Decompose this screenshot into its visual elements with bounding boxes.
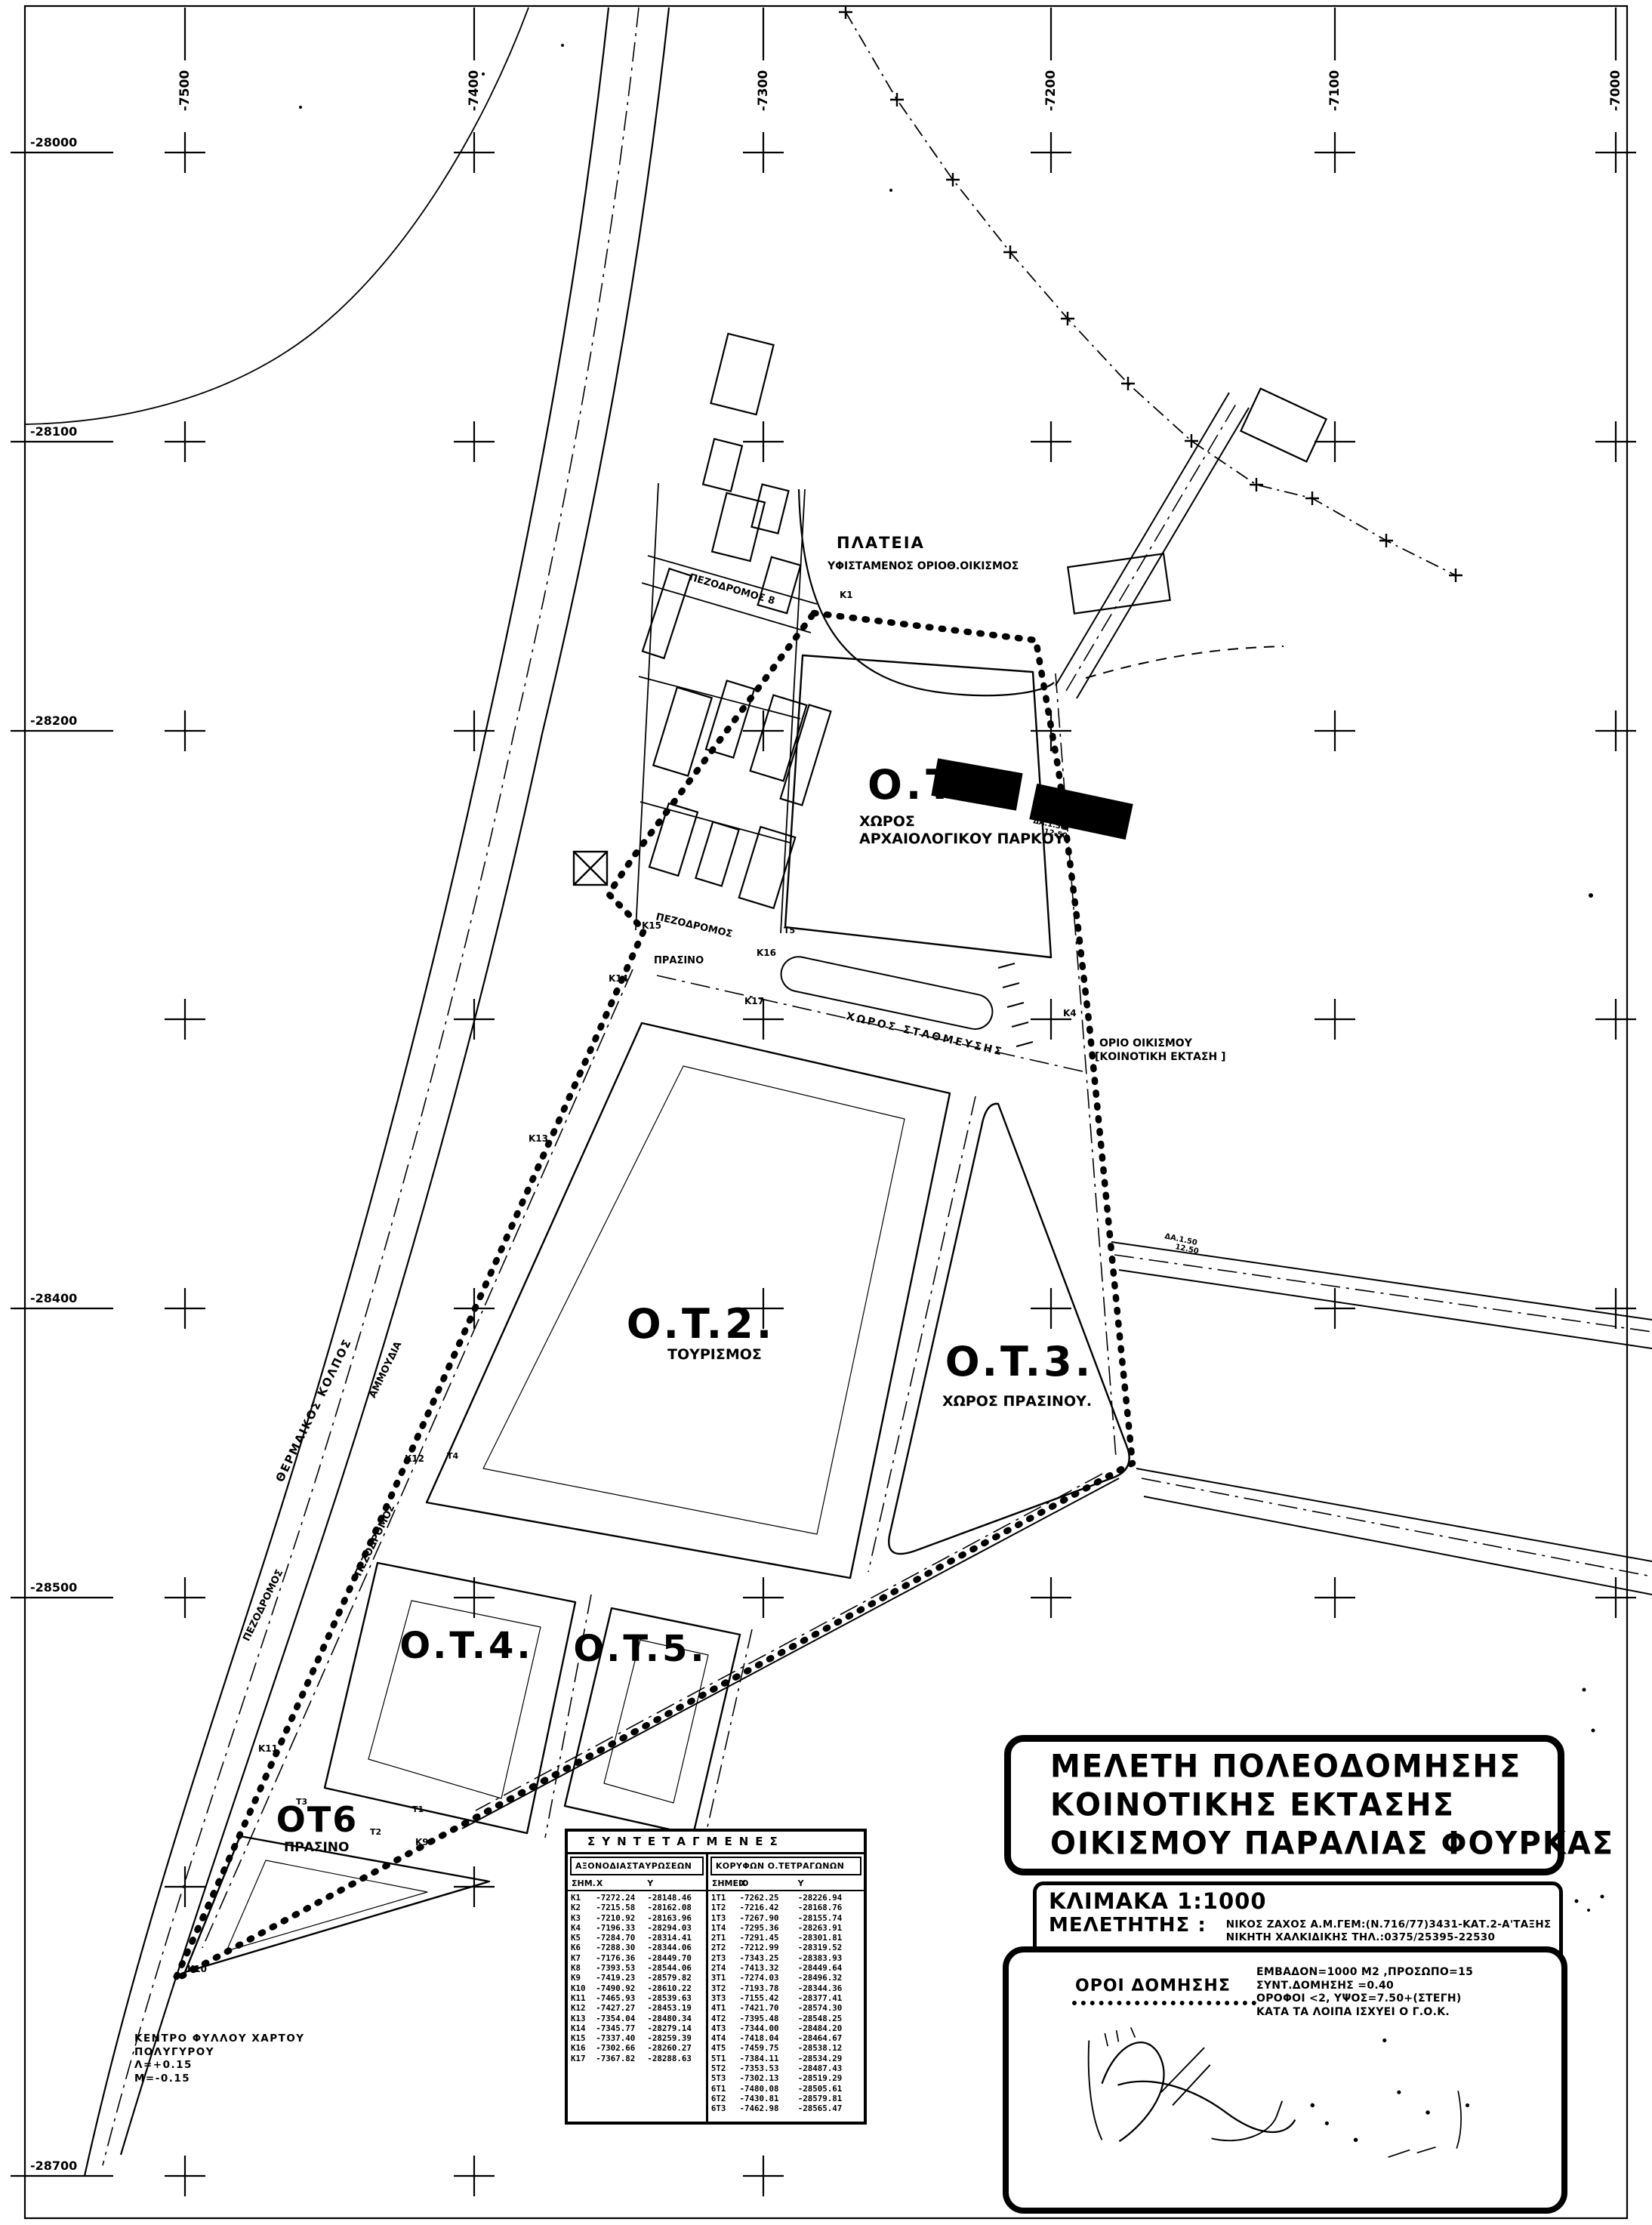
table-cell: -28344.36 <box>798 1983 861 1993</box>
table-row: 1T3-7267.90-28155.74 <box>711 1913 861 1923</box>
grid-cross <box>743 1577 784 1618</box>
table-cell: -7302.66 <box>596 2043 647 2053</box>
grid-x-label: -7300 <box>756 70 771 112</box>
table-row: K7-7176.36-28449.70 <box>571 1953 703 1963</box>
table-row: 5T1-7384.11-28534.29 <box>711 2054 861 2063</box>
table-cell: -28344.06 <box>647 1943 702 1952</box>
fence-plus-icon <box>839 5 852 19</box>
scan-speck <box>889 189 892 192</box>
map-center-note-line: Λ=+0.15 <box>134 2059 305 2072</box>
grid-cross <box>165 710 205 751</box>
table-cell: K1 <box>571 1893 596 1903</box>
table-cell: -7430.81 <box>739 2094 797 2103</box>
table-cell: -28168.76 <box>798 1903 861 1912</box>
scan-speck <box>1592 1729 1595 1733</box>
table-cell: -7274.03 <box>739 1973 797 1983</box>
fence-plus-icon <box>1305 492 1319 505</box>
block-ot6-envelope <box>227 1860 427 1951</box>
table-cell: -7262.25 <box>739 1893 797 1903</box>
table-column-header: Y <box>798 1878 860 1888</box>
map-label-35: T2 <box>370 1827 381 1837</box>
building-footprint <box>649 803 698 876</box>
map-center-note-line: ΚΕΝΤΡΟ ΦΥΛΛΟΥ ΧΑΡΤΟΥ <box>134 2032 305 2046</box>
table-cell: -7367.82 <box>596 2054 647 2063</box>
grid-cross <box>1031 421 1071 462</box>
table-cell: -28449.64 <box>798 1963 861 1973</box>
grid-cross <box>1315 1577 1355 1618</box>
scanned-plan-sheet: { "sheet": { "title_block": { "lines": [… <box>0 0 1652 2225</box>
grid-cross <box>1031 1288 1071 1329</box>
table-row: 4T1-7421.70-28574.30 <box>711 2003 861 2013</box>
table-cell: K16 <box>571 2043 596 2053</box>
table-row: K1-7272.24-28148.46 <box>571 1893 703 1903</box>
existing-buildings <box>643 334 1327 908</box>
map-label-32: K16 <box>757 948 776 958</box>
map-label-3: O.T.2. <box>627 1300 775 1348</box>
map-label-6: ΧΩΡΟΣ ΠΡΑΣΙΝΟΥ. <box>942 1393 1092 1410</box>
map-center-note-line: Μ=-0.15 <box>134 2072 305 2086</box>
map-label-21: ΘΕΡΜΑΙΚΟΣ ΚΟΛΠΟΣ <box>273 1336 354 1484</box>
table-row: K3-7210.92-28163.96 <box>571 1913 703 1923</box>
table-row: K15-7337.40-28259.39 <box>571 2033 703 2043</box>
building-footprint <box>1068 553 1170 613</box>
grid-y-label: -28000 <box>30 135 77 149</box>
map-label-0: O.T.1 <box>868 761 1005 809</box>
building-footprint <box>706 681 754 758</box>
table-cell: -28226.94 <box>798 1893 861 1903</box>
table-row: 1T2-7216.42-28168.76 <box>711 1903 861 1912</box>
table-cell: -28539.63 <box>647 1993 702 2003</box>
table-cell: -28565.47 <box>798 2103 861 2113</box>
table-row: 4T2-7395.48-28548.25 <box>711 2014 861 2023</box>
grid-x-label: -7100 <box>1327 70 1342 112</box>
table-cell: 2T4 <box>711 1963 740 1973</box>
table-cell: -28288.63 <box>647 2054 702 2063</box>
table-cell: -28548.25 <box>798 2014 861 2023</box>
table-cell: K10 <box>571 1983 596 1993</box>
table-cell: 1T3 <box>711 1913 740 1923</box>
map-label-30: K14 <box>609 973 628 984</box>
table-cell: K8 <box>571 1963 596 1973</box>
grid-cross <box>165 2156 205 2196</box>
map-label-4: ΤΟΥΡΙΣΜΟΣ <box>667 1346 762 1363</box>
grid-cross <box>743 421 784 462</box>
grid-cross <box>1595 132 1636 173</box>
table-cell: 1T2 <box>711 1903 740 1912</box>
scan-speck <box>1575 1900 1579 1903</box>
table-cell: -7212.99 <box>739 1943 797 1952</box>
table-row: 3T1-7274.03-28496.32 <box>711 1973 861 1983</box>
map-center-note-line: ΠΟΛΥΓΥΡΟΥ <box>134 2046 305 2060</box>
table-right-header: ΚΟΡΥΦΩΝ Ο.ΤΕΤΡΑΓΩΝΩΝ <box>710 1857 861 1875</box>
map-label-8: O.T.5. <box>573 1628 707 1670</box>
table-row: 5T2-7353.53-28487.43 <box>711 2063 861 2073</box>
fence-plus-markers <box>839 5 1462 582</box>
topleft-field-line <box>25 8 529 424</box>
table-row: K9-7419.23-28579.82 <box>571 1973 703 1983</box>
table-cell: -7393.53 <box>596 1963 647 1973</box>
table-cell: -7462.98 <box>739 2103 797 2113</box>
map-label-12: ΠΛΑΤΕΙΑ <box>837 534 925 552</box>
table-cell: 6T2 <box>711 2094 740 2103</box>
table-cell: 5T1 <box>711 2054 740 2063</box>
map-label-11: ΠΡΑΣΙΝΟ <box>654 955 704 966</box>
table-cell: -7480.08 <box>739 2084 797 2094</box>
table-cell: 5T3 <box>711 2073 740 2083</box>
building-footprint <box>710 334 773 414</box>
table-cell: -28610.22 <box>647 1983 702 1993</box>
table-row: K10-7490.92-28610.22 <box>571 1983 703 1993</box>
table-cell: -7421.70 <box>739 2003 797 2013</box>
table-cell: K13 <box>571 2014 596 2023</box>
grid-cross <box>1315 421 1355 462</box>
map-label-27: K11 <box>258 1743 278 1754</box>
building-footprint <box>758 557 801 613</box>
table-cell: K5 <box>571 1933 596 1943</box>
grid-cross <box>1315 132 1355 173</box>
table-row: K2-7215.58-28162.08 <box>571 1903 703 1912</box>
coordinates-table-title: ΣΥΝΤΕΤΑΓΜΕΝΕΣ <box>568 1832 864 1854</box>
grid-cross <box>1031 132 1071 173</box>
table-cell: -7210.92 <box>596 1913 647 1923</box>
grid-cross <box>1315 999 1355 1040</box>
table-cell: 2T2 <box>711 1943 740 1952</box>
table-row: 4T3-7344.00-28484.20 <box>711 2023 861 2033</box>
grid-cross <box>454 421 495 462</box>
map-label-24: K4 <box>1063 1008 1077 1019</box>
map-label-19: ΠΕΖΟΔΡΟΜΟΣ <box>353 1503 397 1579</box>
grid-cross <box>1315 710 1355 751</box>
table-cell: -28487.43 <box>798 2063 861 2073</box>
settlement-boundary <box>175 613 1133 1980</box>
grid-y-label: -28500 <box>30 1580 77 1595</box>
table-cell: 4T2 <box>711 2014 740 2023</box>
map-label-1: ΧΩΡΟΣ <box>859 813 915 830</box>
scale-label: ΚΛΙΜΑΚΑ 1:1000 <box>1049 1888 1559 1914</box>
table-cell: -7295.36 <box>739 1923 797 1933</box>
scan-speck <box>561 44 564 47</box>
table-row: K5-7284.70-28314.41 <box>571 1933 703 1943</box>
table-cell: -7272.24 <box>596 1893 647 1903</box>
terms-block: ΟΡΟΙ ΔΟΜΗΣΗΣ ΕΜΒΑΔΟΝ=1000 Μ2 ,ΠΡΟΣΩΠΟ=15… <box>1003 1946 1567 2214</box>
table-cell: -7353.53 <box>739 2063 797 2073</box>
table-row: 3T3-7155.42-28377.41 <box>711 1993 861 2003</box>
table-column-header: ΣΗΜΕΙΟ <box>712 1878 740 1888</box>
table-right-columns: ΣΗΜΕΙΟXY <box>708 1875 864 1891</box>
grid-x-label: -7400 <box>467 70 482 112</box>
grid-cross <box>165 1288 205 1329</box>
table-cell: -7344.00 <box>739 2023 797 2033</box>
table-cell: -7418.04 <box>739 2033 797 2043</box>
grid-cross <box>454 1577 495 1618</box>
designer-line-1: ΝΙΚΟΣ ΖΑΧΟΣ Α.Μ.ΓΕΜ:(Ν.716/77)3431-ΚΑΤ.2… <box>1226 1918 1552 1931</box>
table-cell: 3T3 <box>711 1993 740 2003</box>
table-cell: K3 <box>571 1913 596 1923</box>
table-cell: -7427.27 <box>596 2003 647 2013</box>
scan-speck <box>1601 1895 1604 1899</box>
table-cell: -28259.39 <box>647 2033 702 2043</box>
table-left-header: ΑΞΟΝΟΔΙΑΣΤΑΥΡΩΣΕΩΝ <box>570 1857 704 1875</box>
table-cell: 1T1 <box>711 1893 740 1903</box>
map-label-38: T5 <box>784 926 795 935</box>
table-cell: K7 <box>571 1953 596 1963</box>
table-left-rows: K1-7272.24-28148.46K2-7215.58-28162.08K3… <box>568 1891 706 2122</box>
map-label-25: K9 <box>415 1837 429 1847</box>
table-cell: -28519.29 <box>798 2073 861 2083</box>
table-cell: 6T1 <box>711 2084 740 2094</box>
building-footprint <box>752 485 789 534</box>
table-row: K8-7393.53-28544.06 <box>571 1963 703 1973</box>
table-cell: K4 <box>571 1923 596 1933</box>
map-label-28: K12 <box>405 1453 424 1464</box>
table-cell: K12 <box>571 2003 596 2013</box>
parking-ticks <box>998 963 1033 1046</box>
table-cell: K6 <box>571 1943 596 1952</box>
grid-cross <box>165 421 205 462</box>
table-column-header: Y <box>647 1878 702 1888</box>
table-cell: -7465.93 <box>596 1993 647 2003</box>
table-cell: -7284.70 <box>596 1933 647 1943</box>
designer-label: ΜΕΛΕΤΗΤΗΣ : <box>1049 1914 1207 1937</box>
table-cell: -28377.41 <box>798 1993 861 2003</box>
table-cell: -7384.11 <box>739 2054 797 2063</box>
table-row: K17-7367.82-28288.63 <box>571 2054 703 2063</box>
fence-plus-icon <box>1250 478 1263 492</box>
table-cell: -28263.91 <box>798 1923 861 1933</box>
table-cell: -28496.32 <box>798 1973 861 1983</box>
map-label-9: ΟΤ6 <box>276 1799 359 1840</box>
table-cell: -28579.82 <box>647 1973 702 1983</box>
table-cell: K9 <box>571 1973 596 1983</box>
grid-cross <box>1031 1577 1071 1618</box>
table-row: 4T5-7459.75-28538.12 <box>711 2043 861 2053</box>
table-cell: -28383.93 <box>798 1953 861 1963</box>
table-cell: 6T3 <box>711 2103 740 2113</box>
table-cell: -7216.42 <box>739 1903 797 1912</box>
table-cell: -28484.20 <box>798 2023 861 2033</box>
table-cell: -7155.42 <box>739 1993 797 2003</box>
map-label-22: ΑΜΜΟΥΔΙΑ <box>367 1340 404 1401</box>
grid-cross <box>1595 1288 1636 1329</box>
grid-y-label: -28400 <box>30 1291 77 1305</box>
scan-speck <box>1583 1688 1586 1692</box>
grid-cross <box>743 2156 784 2196</box>
table-cell: -28538.12 <box>798 2043 861 2053</box>
table-cell: 5T2 <box>711 2063 740 2073</box>
grid-y-label: -28100 <box>30 424 77 439</box>
hatched-marker-box <box>574 852 607 885</box>
table-row: 3T2-7193.78-28344.36 <box>711 1983 861 1993</box>
map-label-36: T3 <box>296 1797 307 1807</box>
table-column-header: X <box>740 1878 798 1888</box>
table-row: 1T1-7262.25-28226.94 <box>711 1893 861 1903</box>
grid-x-label: -7000 <box>1608 70 1623 112</box>
table-cell: -28464.67 <box>798 2033 861 2043</box>
table-cell: -7337.40 <box>596 2033 647 2043</box>
table-cell: -28301.81 <box>798 1933 861 1943</box>
table-cell: 1T4 <box>711 1923 740 1933</box>
table-cell: -7459.75 <box>739 2043 797 2053</box>
table-row: K12-7427.27-28453.19 <box>571 2003 703 2013</box>
table-column-header: ΣΗΜ. <box>572 1878 596 1888</box>
scan-speck <box>299 106 302 109</box>
table-cell: K14 <box>571 2023 596 2033</box>
fence-plus-icon <box>1449 569 1462 582</box>
table-row: K13-7354.04-28480.34 <box>571 2014 703 2023</box>
table-cell: -28453.19 <box>647 2003 702 2013</box>
scan-speck <box>1587 1909 1590 1912</box>
building-footprint <box>703 439 742 491</box>
scan-speck <box>1589 893 1593 898</box>
grid-cross <box>454 2156 495 2196</box>
grid-cross <box>1031 999 1071 1040</box>
building-footprint <box>695 821 738 886</box>
map-label-13: ΥΦΙΣΤΑΜΕΝΟΣ ΟΡΙΟΘ.ΟΙΚΙΣΜΟΣ <box>827 560 1019 572</box>
map-label-16: ΧΩΡΟΣ ΣΤΑΘΜΕΥΣΗΣ <box>845 1010 1005 1059</box>
table-cell: -7215.58 <box>596 1903 647 1912</box>
map-label-31: K15 <box>642 920 661 931</box>
table-cell: -7419.23 <box>596 1973 647 1983</box>
table-row: 5T3-7302.13-28519.29 <box>711 2073 861 2083</box>
table-cell: 4T3 <box>711 2023 740 2033</box>
table-cell: -7302.13 <box>739 2073 797 2083</box>
scan-speck <box>482 72 485 76</box>
table-cell: -28314.41 <box>647 1933 702 1943</box>
table-cell: -28534.29 <box>798 2054 861 2063</box>
table-row: K16-7302.66-28260.27 <box>571 2043 703 2053</box>
table-left-columns: ΣΗΜ.XY <box>568 1875 706 1891</box>
map-label-34: T1 <box>412 1804 424 1814</box>
table-cell: 3T1 <box>711 1973 740 1983</box>
map-label-10: ΠΡΑΣΙΝΟ <box>284 1840 349 1855</box>
table-cell: -28319.52 <box>798 1943 861 1952</box>
table-row: K11-7465.93-28539.63 <box>571 1993 703 2003</box>
table-cell: -7193.78 <box>739 1983 797 1993</box>
table-row: K4-7196.33-28294.03 <box>571 1923 703 1933</box>
table-cell: -28294.03 <box>647 1923 702 1933</box>
designer-line-2: ΝΙΚΗΤΗ ΧΑΛΚΙΔΙΚΗΣ ΤΗΛ.:0375/25395-22530 <box>1226 1931 1552 1944</box>
map-label-33: K17 <box>744 996 764 1006</box>
map-label-14: ΟΡΙΟ ΟΙΚΙΣΜΟΥ <box>1099 1037 1193 1049</box>
table-row: 2T4-7413.32-28449.64 <box>711 1963 861 1973</box>
table-row: K6-7288.30-28344.06 <box>571 1943 703 1952</box>
map-label-26: K10 <box>187 1964 207 1974</box>
grid-x-label: -7200 <box>1043 70 1059 112</box>
table-cell: K15 <box>571 2033 596 2043</box>
table-cell: 4T5 <box>711 2043 740 2053</box>
table-row: 2T1-7291.45-28301.81 <box>711 1933 861 1943</box>
table-cell: -7343.25 <box>739 1953 797 1963</box>
map-label-37: T4 <box>447 1451 459 1461</box>
fence-plus-icon <box>1185 434 1198 448</box>
map-label-2: ΑΡΧΑΙΟΛΟΓΙΚΟΥ ΠΑΡΚΟΥ. <box>859 831 1070 847</box>
table-row: K14-7345.77-28279.14 <box>571 2023 703 2033</box>
block-ot3-outline <box>889 1104 1129 1554</box>
table-cell: -28579.81 <box>798 2094 861 2103</box>
table-row: 4T4-7418.04-28464.67 <box>711 2033 861 2043</box>
table-cell: -28163.96 <box>647 1913 702 1923</box>
table-row: 2T2-7212.99-28319.52 <box>711 1943 861 1952</box>
table-cell: -7267.90 <box>739 1913 797 1923</box>
table-row: 2T3-7343.25-28383.93 <box>711 1953 861 1963</box>
table-right-rows: 1T1-7262.25-28226.941T2-7216.42-28168.76… <box>708 1891 864 2122</box>
table-cell: -28449.70 <box>647 1953 702 1963</box>
table-cell: -7413.32 <box>739 1963 797 1973</box>
grid-cross <box>165 132 205 173</box>
table-row: 6T3-7462.98-28565.47 <box>711 2103 861 2113</box>
table-cell: -7291.45 <box>739 1933 797 1943</box>
title-block: ΜΕΛΕΤΗ ΠΟΛΕΟΔΟΜΗΣΗΣ ΚΟΙΝΟΤΙΚΗΣ ΕΚΤΑΣΗΣ Ο… <box>1004 1735 1564 1875</box>
grid-cross <box>165 999 205 1040</box>
coast-road-centerline <box>103 8 639 2165</box>
fence-plus-icon <box>1379 534 1393 547</box>
table-cell: -7288.30 <box>596 1943 647 1952</box>
fence-line <box>846 12 1456 575</box>
table-cell: 3T2 <box>711 1983 740 1993</box>
map-label-20: ΠΕΖΟΔΡΟΜΟΣ <box>241 1568 285 1644</box>
table-cell: -28260.27 <box>647 2043 702 2053</box>
map-label-29: K13 <box>529 1133 548 1144</box>
table-cell: K17 <box>571 2054 596 2063</box>
map-label-7: O.T.4. <box>399 1625 533 1667</box>
grid-cross <box>743 132 784 173</box>
title-line-2: ΚΟΙΝΟΤΙΚΗΣ ΕΚΤΑΣΗΣ <box>1050 1785 1558 1826</box>
table-cell: -28574.30 <box>798 2003 861 2013</box>
grid-cross <box>1595 1577 1636 1618</box>
table-row: 1T4-7295.36-28263.91 <box>711 1923 861 1933</box>
table-cell: 4T1 <box>711 2003 740 2013</box>
table-cell: -28544.06 <box>647 1963 702 1973</box>
grid-x-label: -7500 <box>177 70 193 112</box>
grid-cross <box>1315 1288 1355 1329</box>
building-footprint <box>1241 389 1326 462</box>
table-cell: -28279.14 <box>647 2023 702 2033</box>
grid-cross <box>165 1577 205 1618</box>
table-cell: -7196.33 <box>596 1923 647 1933</box>
map-label-5: O.T.3. <box>945 1338 1093 1385</box>
table-cell: -28155.74 <box>798 1913 861 1923</box>
table-cell: -28162.08 <box>647 1903 702 1912</box>
table-cell: -7354.04 <box>596 2014 647 2023</box>
table-cell: -28505.61 <box>798 2084 861 2094</box>
table-cell: -7490.92 <box>596 1983 647 1993</box>
fence-plus-icon <box>890 93 904 106</box>
title-line-1: ΜΕΛΕΤΗ ΠΟΛΕΟΔΟΜΗΣΗΣ <box>1050 1746 1558 1787</box>
table-cell: -7395.48 <box>739 2014 797 2023</box>
grid-cross <box>1595 999 1636 1040</box>
block-ot4-outline <box>325 1563 575 1833</box>
grid-cross <box>165 1866 205 1907</box>
table-column-header: X <box>596 1878 647 1888</box>
grid-cross <box>1595 710 1636 751</box>
table-cell: -7345.77 <box>596 2023 647 2033</box>
table-cell: 4T4 <box>711 2033 740 2043</box>
table-row: 6T1-7480.08-28505.61 <box>711 2084 861 2094</box>
signature-scribbles <box>1009 1952 1561 2208</box>
table-cell: -28148.46 <box>647 1893 702 1903</box>
table-cell: -7176.36 <box>596 1953 647 1963</box>
map-label-18: ΠΕΖΟΔΡΟΜΟΣ <box>655 911 733 940</box>
table-cell: 2T3 <box>711 1953 740 1963</box>
grid-y-label: -28200 <box>30 713 77 728</box>
title-line-3: ΟΙΚΙΣΜΟΥ ΠΑΡΑΛΙΑΣ ΦΟΥΡΚΑΣ <box>1050 1823 1558 1864</box>
map-label-23: K1 <box>840 590 853 600</box>
table-cell: 2T1 <box>711 1933 740 1943</box>
fence-plus-icon <box>946 173 960 186</box>
table-cell: -28480.34 <box>647 2014 702 2023</box>
map-center-note: ΚΕΝΤΡΟ ΦΥΛΛΟΥ ΧΑΡΤΟΥΠΟΛΥΓΥΡΟΥΛ=+0.15Μ=-0… <box>134 2032 305 2085</box>
grid-cross <box>1595 421 1636 462</box>
